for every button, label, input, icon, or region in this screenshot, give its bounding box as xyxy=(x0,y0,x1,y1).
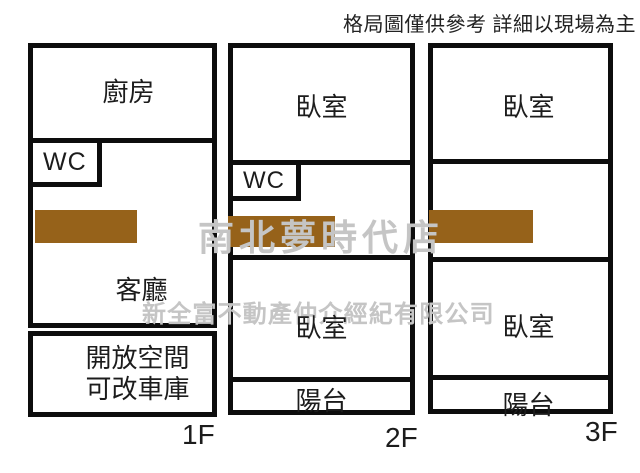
floor-label-3f: 3F xyxy=(585,416,618,448)
room-label-kitchen: 廚房 xyxy=(28,72,217,109)
room-label-balcony-2f: 陽台 xyxy=(228,381,415,418)
room-label-wc-1f: WC xyxy=(33,148,87,177)
room-label-bedroom-2f-bottom: 臥室 xyxy=(228,308,415,345)
watermark-store-name: 南北夢時代店 xyxy=(198,209,444,261)
wall-3f-bedroom-divider xyxy=(433,159,608,164)
floor-label-1f: 1F xyxy=(182,419,215,451)
stairs-rect-3f xyxy=(429,210,533,243)
floor-plan-image: 格局圖僅供參考 詳細以現場為主 WC 廚房 客廳 開放空間 可改車庫 1F WC… xyxy=(0,0,640,473)
room-label-wc-2f: WC xyxy=(233,167,285,195)
room-label-open-line1: 開放空間 xyxy=(58,343,217,374)
stairs-rect-1f xyxy=(35,210,137,243)
room-label-bedroom-2f-top: 臥室 xyxy=(228,87,415,124)
room-label-open-line2: 可改車庫 xyxy=(58,374,217,405)
room-label-living: 客廳 xyxy=(28,270,217,307)
wc-room-1f: WC xyxy=(33,143,102,187)
wall-3f-stairs-divider xyxy=(433,257,608,262)
floor-label-2f: 2F xyxy=(385,422,418,454)
disclaimer-text: 格局圖僅供參考 詳細以現場為主 xyxy=(343,8,636,37)
room-label-bedroom-3f-top: 臥室 xyxy=(428,87,613,124)
wc-room-2f: WC xyxy=(233,165,301,201)
room-label-bedroom-3f-bottom: 臥室 xyxy=(428,307,613,344)
wall-3f-balcony-divider xyxy=(433,375,608,380)
room-label-open-space: 開放空間 可改車庫 xyxy=(28,343,217,405)
